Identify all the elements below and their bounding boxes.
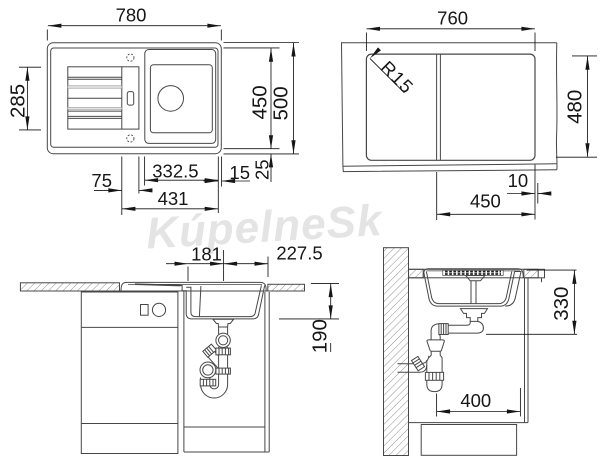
svg-text:450: 450 xyxy=(470,190,501,211)
svg-text:431: 431 xyxy=(158,188,189,209)
svg-text:190: 190 xyxy=(308,319,331,353)
svg-text:332.5: 332.5 xyxy=(152,160,198,181)
svg-text:R15: R15 xyxy=(377,57,418,98)
svg-text:181: 181 xyxy=(191,244,222,265)
svg-text:480: 480 xyxy=(563,90,586,124)
svg-text:330: 330 xyxy=(550,287,573,321)
svg-text:400: 400 xyxy=(460,390,491,411)
svg-text:15: 15 xyxy=(229,162,250,183)
svg-text:285: 285 xyxy=(7,84,30,118)
svg-text:780: 780 xyxy=(116,5,147,26)
svg-text:10: 10 xyxy=(508,170,529,191)
svg-text:25: 25 xyxy=(252,159,273,180)
svg-text:450: 450 xyxy=(248,85,271,119)
svg-text:500: 500 xyxy=(270,86,293,120)
svg-text:227.5: 227.5 xyxy=(276,242,322,263)
svg-text:760: 760 xyxy=(437,8,468,29)
svg-text:75: 75 xyxy=(91,170,112,191)
